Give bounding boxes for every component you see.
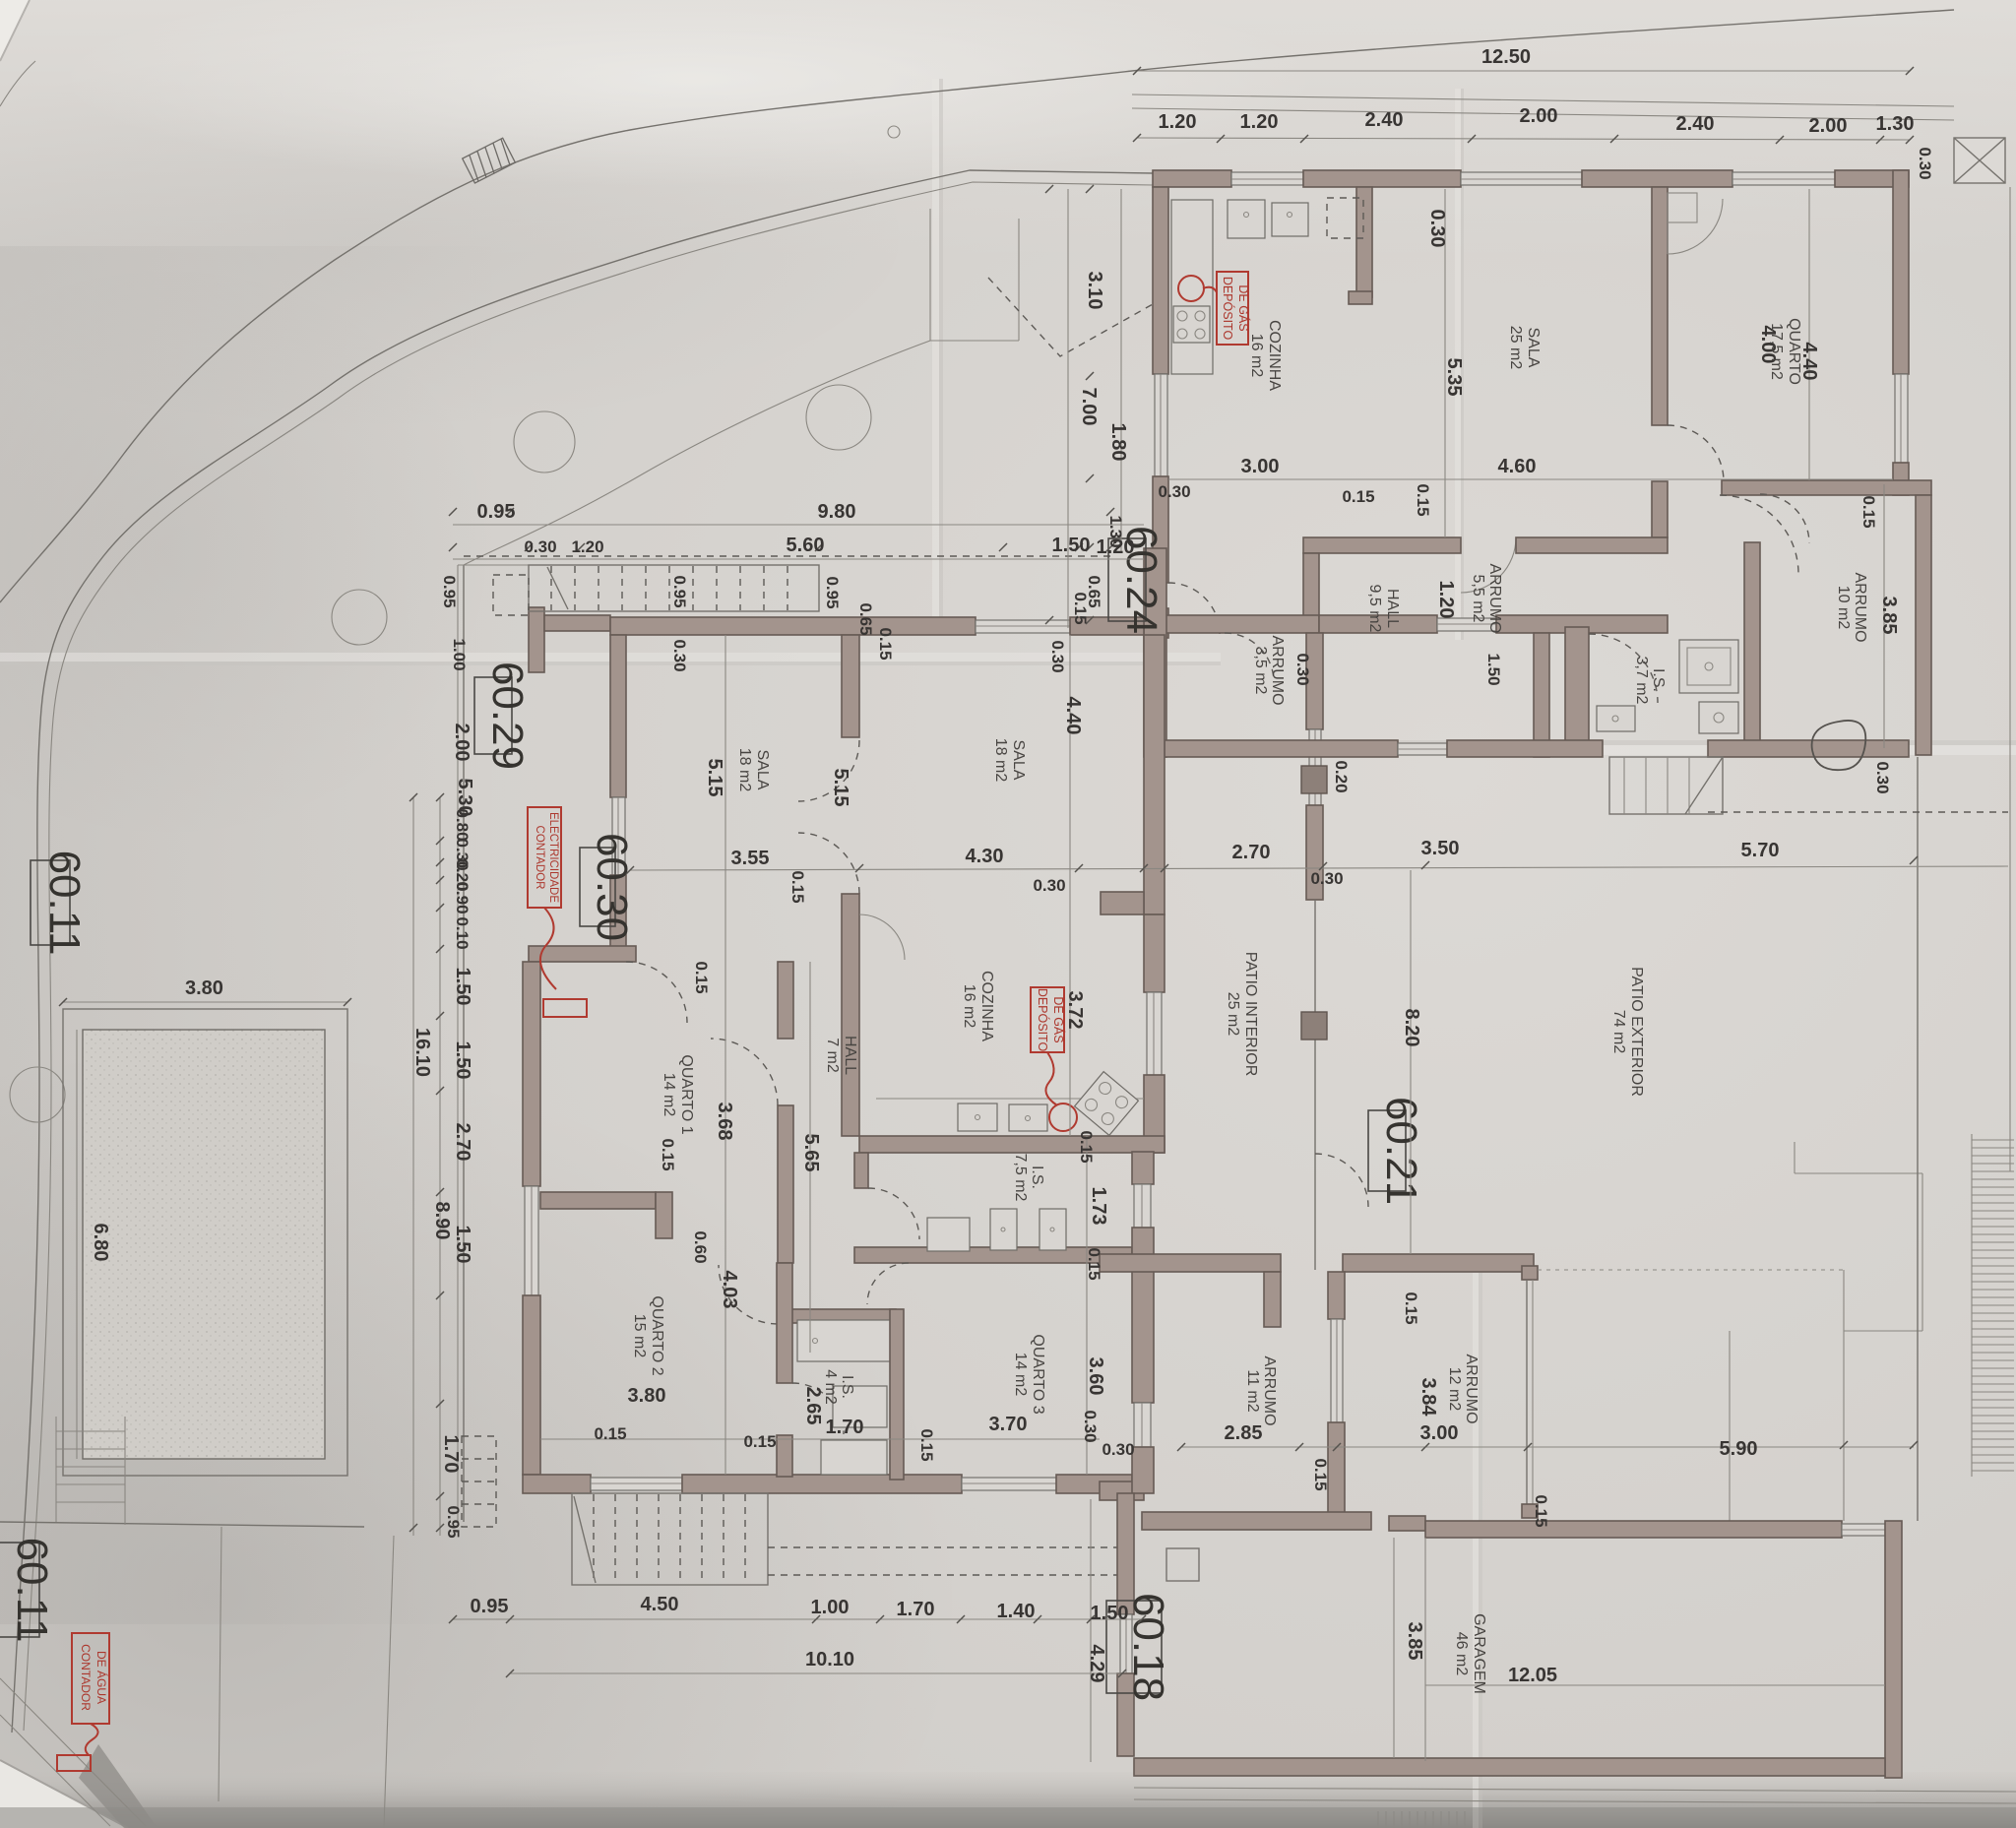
- svg-text:3.72: 3.72: [1064, 991, 1086, 1030]
- svg-text:SALA: SALA: [1010, 740, 1027, 781]
- svg-text:QUARTO 2: QUARTO 2: [649, 1295, 665, 1375]
- svg-text:16 m2: 16 m2: [961, 984, 977, 1029]
- svg-text:1.20: 1.20: [1240, 111, 1279, 133]
- svg-text:4.50: 4.50: [641, 1594, 679, 1615]
- svg-text:5.70: 5.70: [1741, 840, 1780, 861]
- svg-text:COZINHA: COZINHA: [978, 971, 995, 1041]
- svg-text:1.73: 1.73: [1088, 1187, 1109, 1226]
- svg-text:CONTADOR: CONTADOR: [534, 826, 545, 890]
- svg-text:5,5 m2: 5,5 m2: [1470, 575, 1486, 623]
- svg-text:60.11: 60.11: [40, 851, 89, 956]
- svg-text:ARRUMO: ARRUMO: [1463, 1354, 1480, 1423]
- svg-text:1.30: 1.30: [1106, 515, 1125, 547]
- svg-text:DE ÁGUA: DE ÁGUA: [94, 1651, 109, 1704]
- svg-text:0.95: 0.95: [823, 576, 842, 608]
- svg-text:1.20: 1.20: [1159, 111, 1197, 133]
- svg-text:0.30: 0.30: [1033, 876, 1065, 895]
- svg-text:2.40: 2.40: [1676, 113, 1715, 135]
- svg-text:0.95: 0.95: [670, 575, 689, 607]
- svg-text:QUARTO 3: QUARTO 3: [1030, 1334, 1046, 1414]
- svg-text:0.30: 0.30: [670, 639, 689, 671]
- svg-text:0.15: 0.15: [1414, 483, 1432, 516]
- svg-text:14 m2: 14 m2: [1012, 1353, 1029, 1397]
- svg-text:1.50: 1.50: [1091, 1603, 1129, 1624]
- svg-text:3.80: 3.80: [185, 977, 223, 999]
- svg-text:0.30: 0.30: [1426, 210, 1448, 248]
- svg-text:0.30: 0.30: [1048, 640, 1067, 672]
- svg-text:8.90: 8.90: [431, 1202, 453, 1240]
- svg-text:1.40: 1.40: [997, 1601, 1036, 1622]
- svg-text:0.20: 0.20: [1332, 760, 1351, 792]
- svg-text:0.15: 0.15: [692, 961, 711, 993]
- svg-text:16.10: 16.10: [411, 1028, 433, 1077]
- svg-text:2.70: 2.70: [452, 1123, 473, 1162]
- svg-text:DE GÁS: DE GÁS: [1236, 284, 1251, 331]
- svg-text:3.68: 3.68: [714, 1103, 735, 1141]
- svg-text:60.11: 60.11: [8, 1538, 56, 1643]
- svg-text:2.65: 2.65: [802, 1387, 824, 1425]
- svg-text:6.80: 6.80: [90, 1224, 111, 1262]
- svg-text:12.05: 12.05: [1508, 1665, 1557, 1686]
- svg-text:11 m2: 11 m2: [1244, 1369, 1261, 1412]
- svg-text:4.30: 4.30: [966, 846, 1004, 867]
- svg-text:0.15: 0.15: [1071, 592, 1090, 624]
- svg-text:1.50: 1.50: [452, 1041, 473, 1080]
- svg-text:3.70: 3.70: [989, 1414, 1028, 1435]
- svg-text:74 m2: 74 m2: [1610, 1010, 1627, 1054]
- svg-text:5.15: 5.15: [830, 769, 851, 807]
- svg-text:PATIO EXTERIOR: PATIO EXTERIOR: [1628, 967, 1645, 1097]
- svg-text:0.95: 0.95: [440, 575, 459, 607]
- svg-text:17,5 m2: 17,5 m2: [1768, 323, 1785, 380]
- svg-text:1.50: 1.50: [1484, 653, 1503, 685]
- svg-text:4.29: 4.29: [1086, 1645, 1107, 1683]
- svg-text:2.40: 2.40: [1365, 109, 1404, 131]
- svg-text:4.40: 4.40: [1062, 697, 1084, 735]
- svg-text:14 m2: 14 m2: [661, 1073, 677, 1117]
- svg-text:7 m2: 7 m2: [824, 1038, 841, 1073]
- svg-text:0.30: 0.30: [1158, 482, 1190, 501]
- svg-text:25 m2: 25 m2: [1225, 992, 1241, 1037]
- svg-text:0.30: 0.30: [1310, 869, 1343, 888]
- svg-text:0.15: 0.15: [1311, 1458, 1330, 1490]
- svg-text:3.60: 3.60: [1085, 1357, 1106, 1396]
- svg-text:9.80: 9.80: [818, 501, 856, 523]
- svg-text:0.15: 0.15: [788, 870, 807, 903]
- svg-text:7.00: 7.00: [1078, 388, 1100, 426]
- svg-text:SALA: SALA: [1525, 328, 1542, 368]
- svg-text:2.00: 2.00: [1809, 115, 1848, 137]
- svg-text:DEPÓSITO: DEPÓSITO: [1036, 988, 1050, 1052]
- svg-text:5.90: 5.90: [1720, 1438, 1758, 1460]
- svg-text:4 m2: 4 m2: [822, 1369, 839, 1405]
- svg-text:1.30: 1.30: [1876, 113, 1915, 135]
- svg-text:0.80: 0.80: [453, 808, 472, 841]
- svg-text:DE GÁS: DE GÁS: [1051, 996, 1066, 1042]
- svg-text:ARRUMO: ARRUMO: [1261, 1355, 1278, 1425]
- svg-text:QUARTO: QUARTO: [1786, 318, 1802, 385]
- svg-text:4.03: 4.03: [719, 1271, 740, 1309]
- svg-text:I.S.: I.S.: [839, 1375, 855, 1399]
- svg-text:12 m2: 12 m2: [1446, 1367, 1463, 1412]
- svg-text:2.00: 2.00: [451, 724, 472, 762]
- svg-text:3.84: 3.84: [1417, 1378, 1439, 1418]
- svg-text:ELECTRICIDADE: ELECTRICIDADE: [547, 812, 559, 903]
- svg-text:1.70: 1.70: [440, 1435, 462, 1474]
- svg-text:25 m2: 25 m2: [1507, 326, 1524, 370]
- svg-text:ARRUMO: ARRUMO: [1852, 572, 1868, 642]
- svg-text:0.15: 0.15: [743, 1432, 776, 1451]
- svg-text:0.15: 0.15: [1402, 1292, 1420, 1324]
- svg-text:0.95: 0.95: [477, 501, 516, 523]
- svg-text:4.60: 4.60: [1498, 456, 1537, 477]
- svg-text:1.20: 1.20: [571, 537, 603, 556]
- svg-text:0.15: 0.15: [1859, 495, 1878, 528]
- svg-text:1.70: 1.70: [897, 1599, 935, 1620]
- svg-text:5.15: 5.15: [704, 759, 725, 797]
- svg-text:0.15: 0.15: [1085, 1247, 1103, 1280]
- svg-text:10 m2: 10 m2: [1835, 586, 1852, 630]
- svg-text:16 m2: 16 m2: [1248, 334, 1265, 378]
- svg-text:DEPÓSITO: DEPÓSITO: [1221, 277, 1235, 341]
- svg-text:I.S.: I.S.: [1029, 1166, 1045, 1189]
- svg-text:0.15: 0.15: [876, 627, 895, 660]
- svg-text:60.18: 60.18: [1124, 1593, 1172, 1701]
- svg-text:3.50: 3.50: [1421, 838, 1460, 859]
- svg-text:15 m2: 15 m2: [631, 1314, 648, 1358]
- svg-text:1.50: 1.50: [1052, 535, 1091, 556]
- svg-text:1.50: 1.50: [452, 968, 473, 1006]
- svg-text:0.65: 0.65: [856, 602, 875, 635]
- svg-text:18 m2: 18 m2: [736, 748, 753, 792]
- svg-text:1.50: 1.50: [452, 1226, 473, 1264]
- svg-text:GARAGEM: GARAGEM: [1471, 1613, 1487, 1694]
- svg-text:0.30: 0.30: [524, 537, 556, 556]
- svg-text:0.95: 0.95: [471, 1596, 509, 1617]
- svg-text:60.21: 60.21: [1377, 1097, 1425, 1205]
- svg-text:12.50: 12.50: [1481, 46, 1531, 68]
- svg-text:1.00: 1.00: [811, 1597, 850, 1618]
- svg-text:0.15: 0.15: [1077, 1130, 1096, 1163]
- svg-text:10.10: 10.10: [805, 1649, 854, 1670]
- svg-text:ARRUMO: ARRUMO: [1269, 635, 1286, 705]
- svg-text:0.90: 0.90: [453, 881, 472, 914]
- svg-text:0.30: 0.30: [1102, 1440, 1134, 1459]
- svg-text:0.30: 0.30: [1293, 653, 1312, 685]
- svg-text:1.70: 1.70: [826, 1417, 864, 1438]
- svg-text:0.15: 0.15: [594, 1424, 626, 1443]
- svg-text:5.35: 5.35: [1443, 358, 1465, 397]
- svg-text:ARRUMO: ARRUMO: [1486, 563, 1503, 633]
- svg-text:3,5 m2: 3,5 m2: [1252, 647, 1269, 695]
- svg-text:3.80: 3.80: [628, 1385, 666, 1407]
- svg-text:8.20: 8.20: [1401, 1009, 1422, 1047]
- svg-text:0.30: 0.30: [1916, 147, 1934, 179]
- svg-text:3.00: 3.00: [1241, 456, 1280, 477]
- svg-text:COZINHA: COZINHA: [1266, 320, 1283, 391]
- svg-text:5.60: 5.60: [787, 535, 825, 556]
- svg-text:0.15: 0.15: [659, 1138, 677, 1170]
- svg-text:QUARTO 1: QUARTO 1: [678, 1054, 695, 1134]
- svg-text:9,5 m2: 9,5 m2: [1366, 585, 1383, 633]
- svg-text:PATIO INTERIOR: PATIO INTERIOR: [1242, 952, 1259, 1077]
- svg-text:HALL: HALL: [1384, 589, 1401, 628]
- svg-text:0.15: 0.15: [1532, 1494, 1550, 1527]
- svg-text:5.65: 5.65: [800, 1134, 822, 1172]
- svg-text:1.80: 1.80: [1107, 423, 1129, 462]
- svg-text:0.10: 0.10: [453, 916, 472, 949]
- svg-text:0.30: 0.30: [1081, 1410, 1100, 1442]
- svg-text:0.15: 0.15: [917, 1428, 936, 1461]
- svg-text:60.30: 60.30: [588, 833, 636, 941]
- svg-text:0.95: 0.95: [444, 1505, 463, 1538]
- svg-text:0.15: 0.15: [1342, 487, 1374, 506]
- svg-text:3.85: 3.85: [1878, 597, 1900, 635]
- svg-text:7,5 m2: 7,5 m2: [1012, 1154, 1029, 1202]
- svg-text:2.85: 2.85: [1225, 1422, 1263, 1444]
- svg-text:0.30: 0.30: [1873, 761, 1892, 793]
- svg-text:3.55: 3.55: [731, 848, 770, 869]
- svg-text:46 m2: 46 m2: [1453, 1632, 1470, 1676]
- svg-text:3.10: 3.10: [1084, 272, 1105, 310]
- svg-text:3,7 m2: 3,7 m2: [1633, 657, 1650, 705]
- svg-text:SALA: SALA: [754, 750, 771, 790]
- svg-text:18 m2: 18 m2: [992, 738, 1009, 783]
- svg-text:1.00: 1.00: [450, 638, 469, 670]
- svg-text:60.29: 60.29: [483, 662, 532, 770]
- svg-text:1.20: 1.20: [1435, 581, 1457, 619]
- svg-text:CONTADOR: CONTADOR: [79, 1644, 93, 1711]
- svg-text:0.60: 0.60: [691, 1230, 710, 1263]
- svg-text:I.S.: I.S.: [1650, 668, 1667, 692]
- svg-text:3.00: 3.00: [1420, 1422, 1459, 1444]
- svg-text:3.85: 3.85: [1404, 1622, 1425, 1661]
- svg-text:2.00: 2.00: [1520, 105, 1558, 127]
- svg-text:2.70: 2.70: [1232, 842, 1271, 863]
- svg-text:HALL: HALL: [842, 1036, 858, 1075]
